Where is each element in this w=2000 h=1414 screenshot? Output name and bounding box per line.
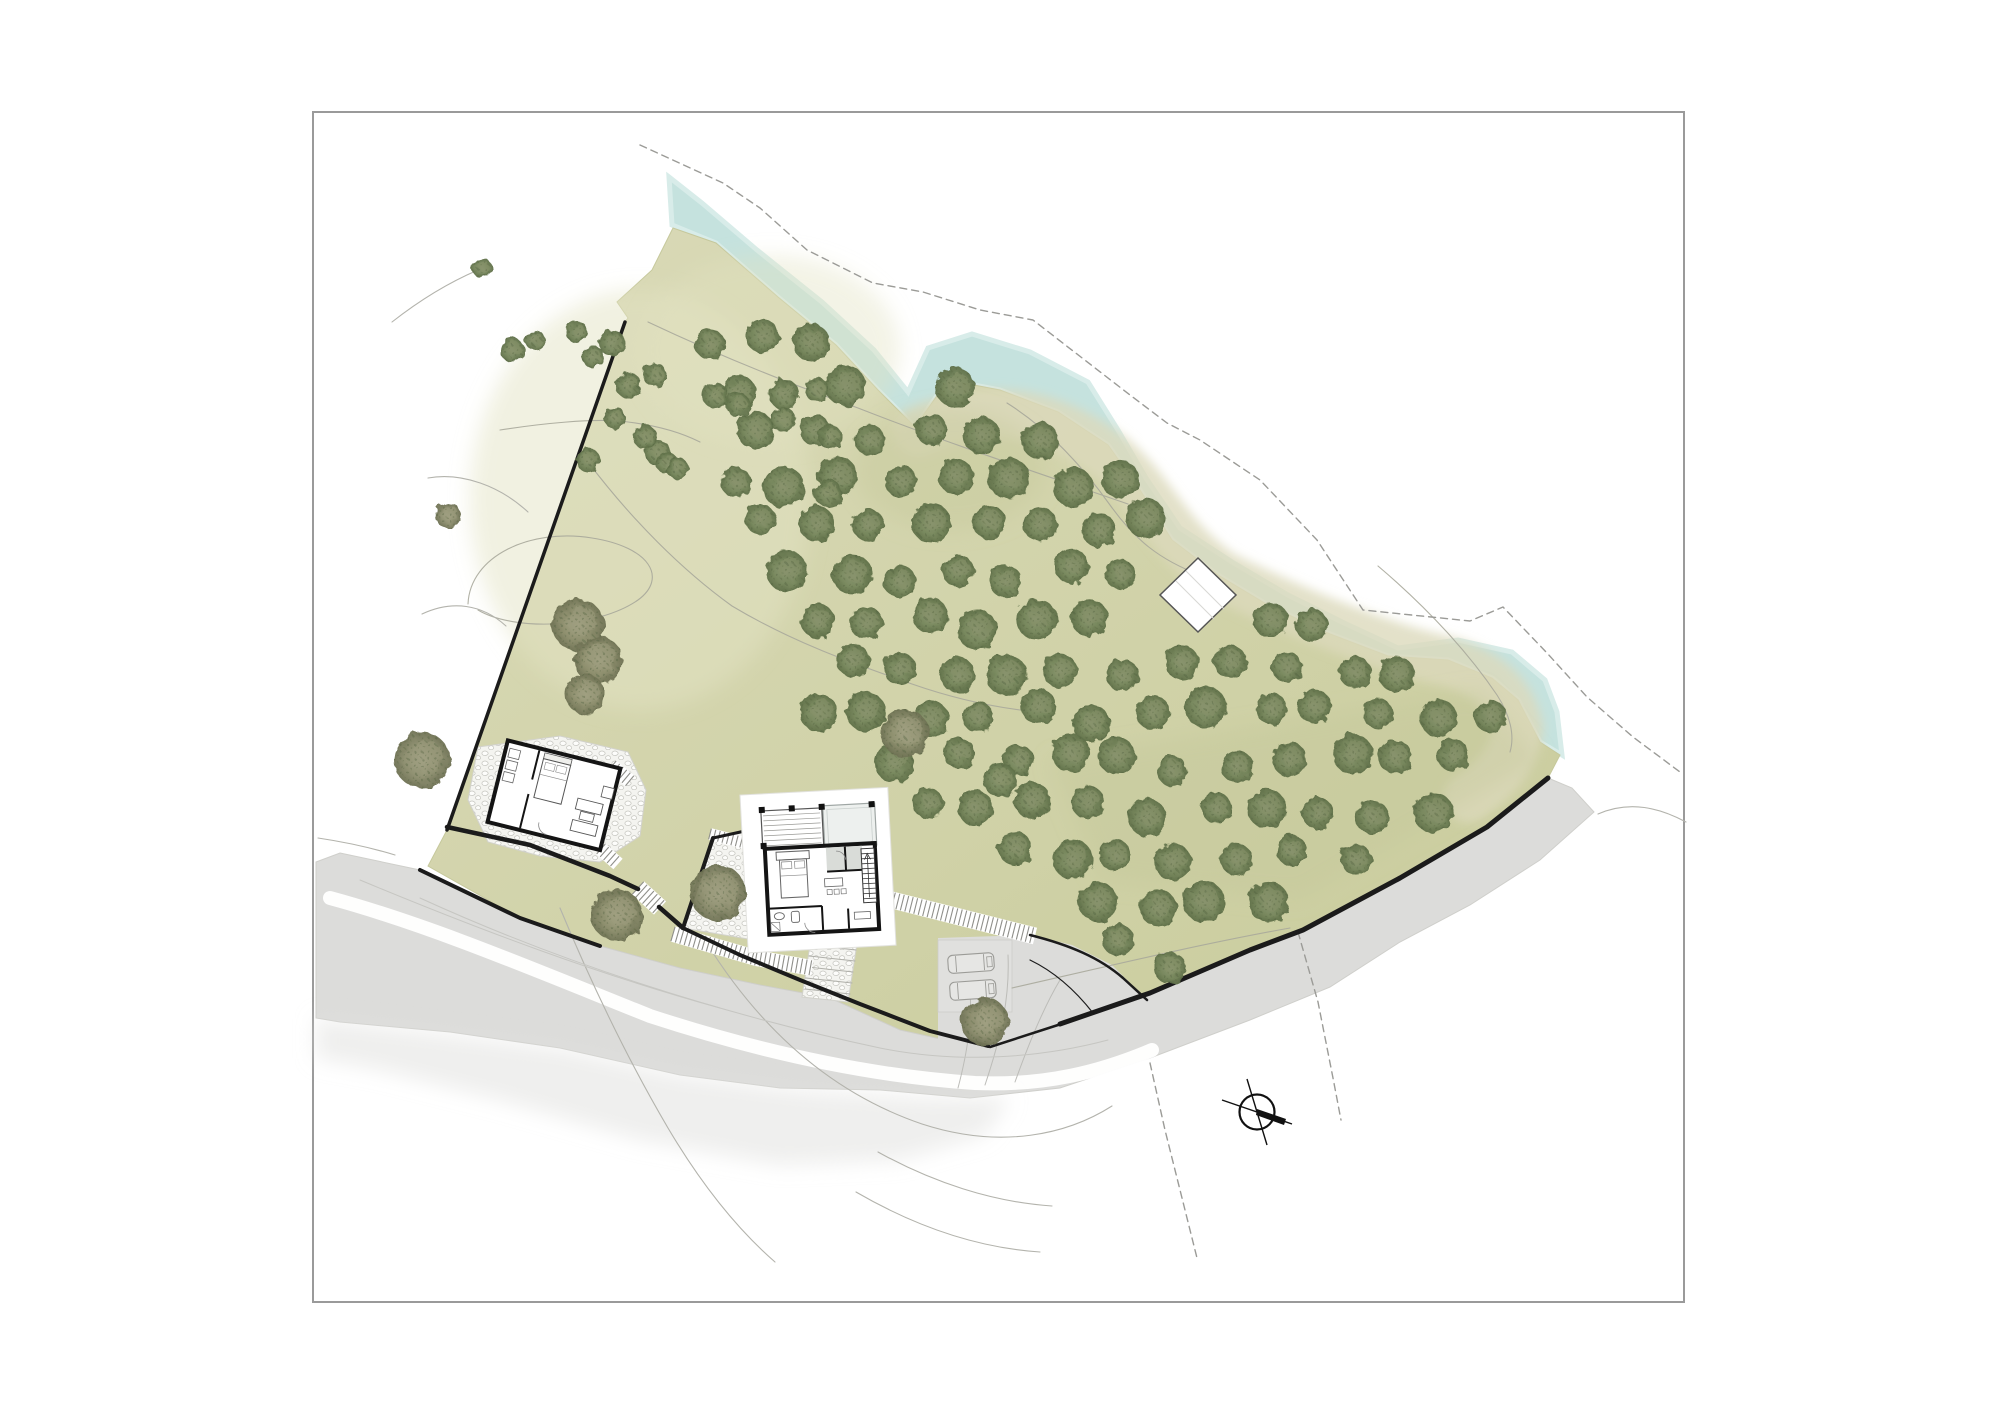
main-house — [740, 787, 896, 953]
page — [0, 0, 2000, 1414]
site-plan-drawing — [0, 0, 2000, 1414]
